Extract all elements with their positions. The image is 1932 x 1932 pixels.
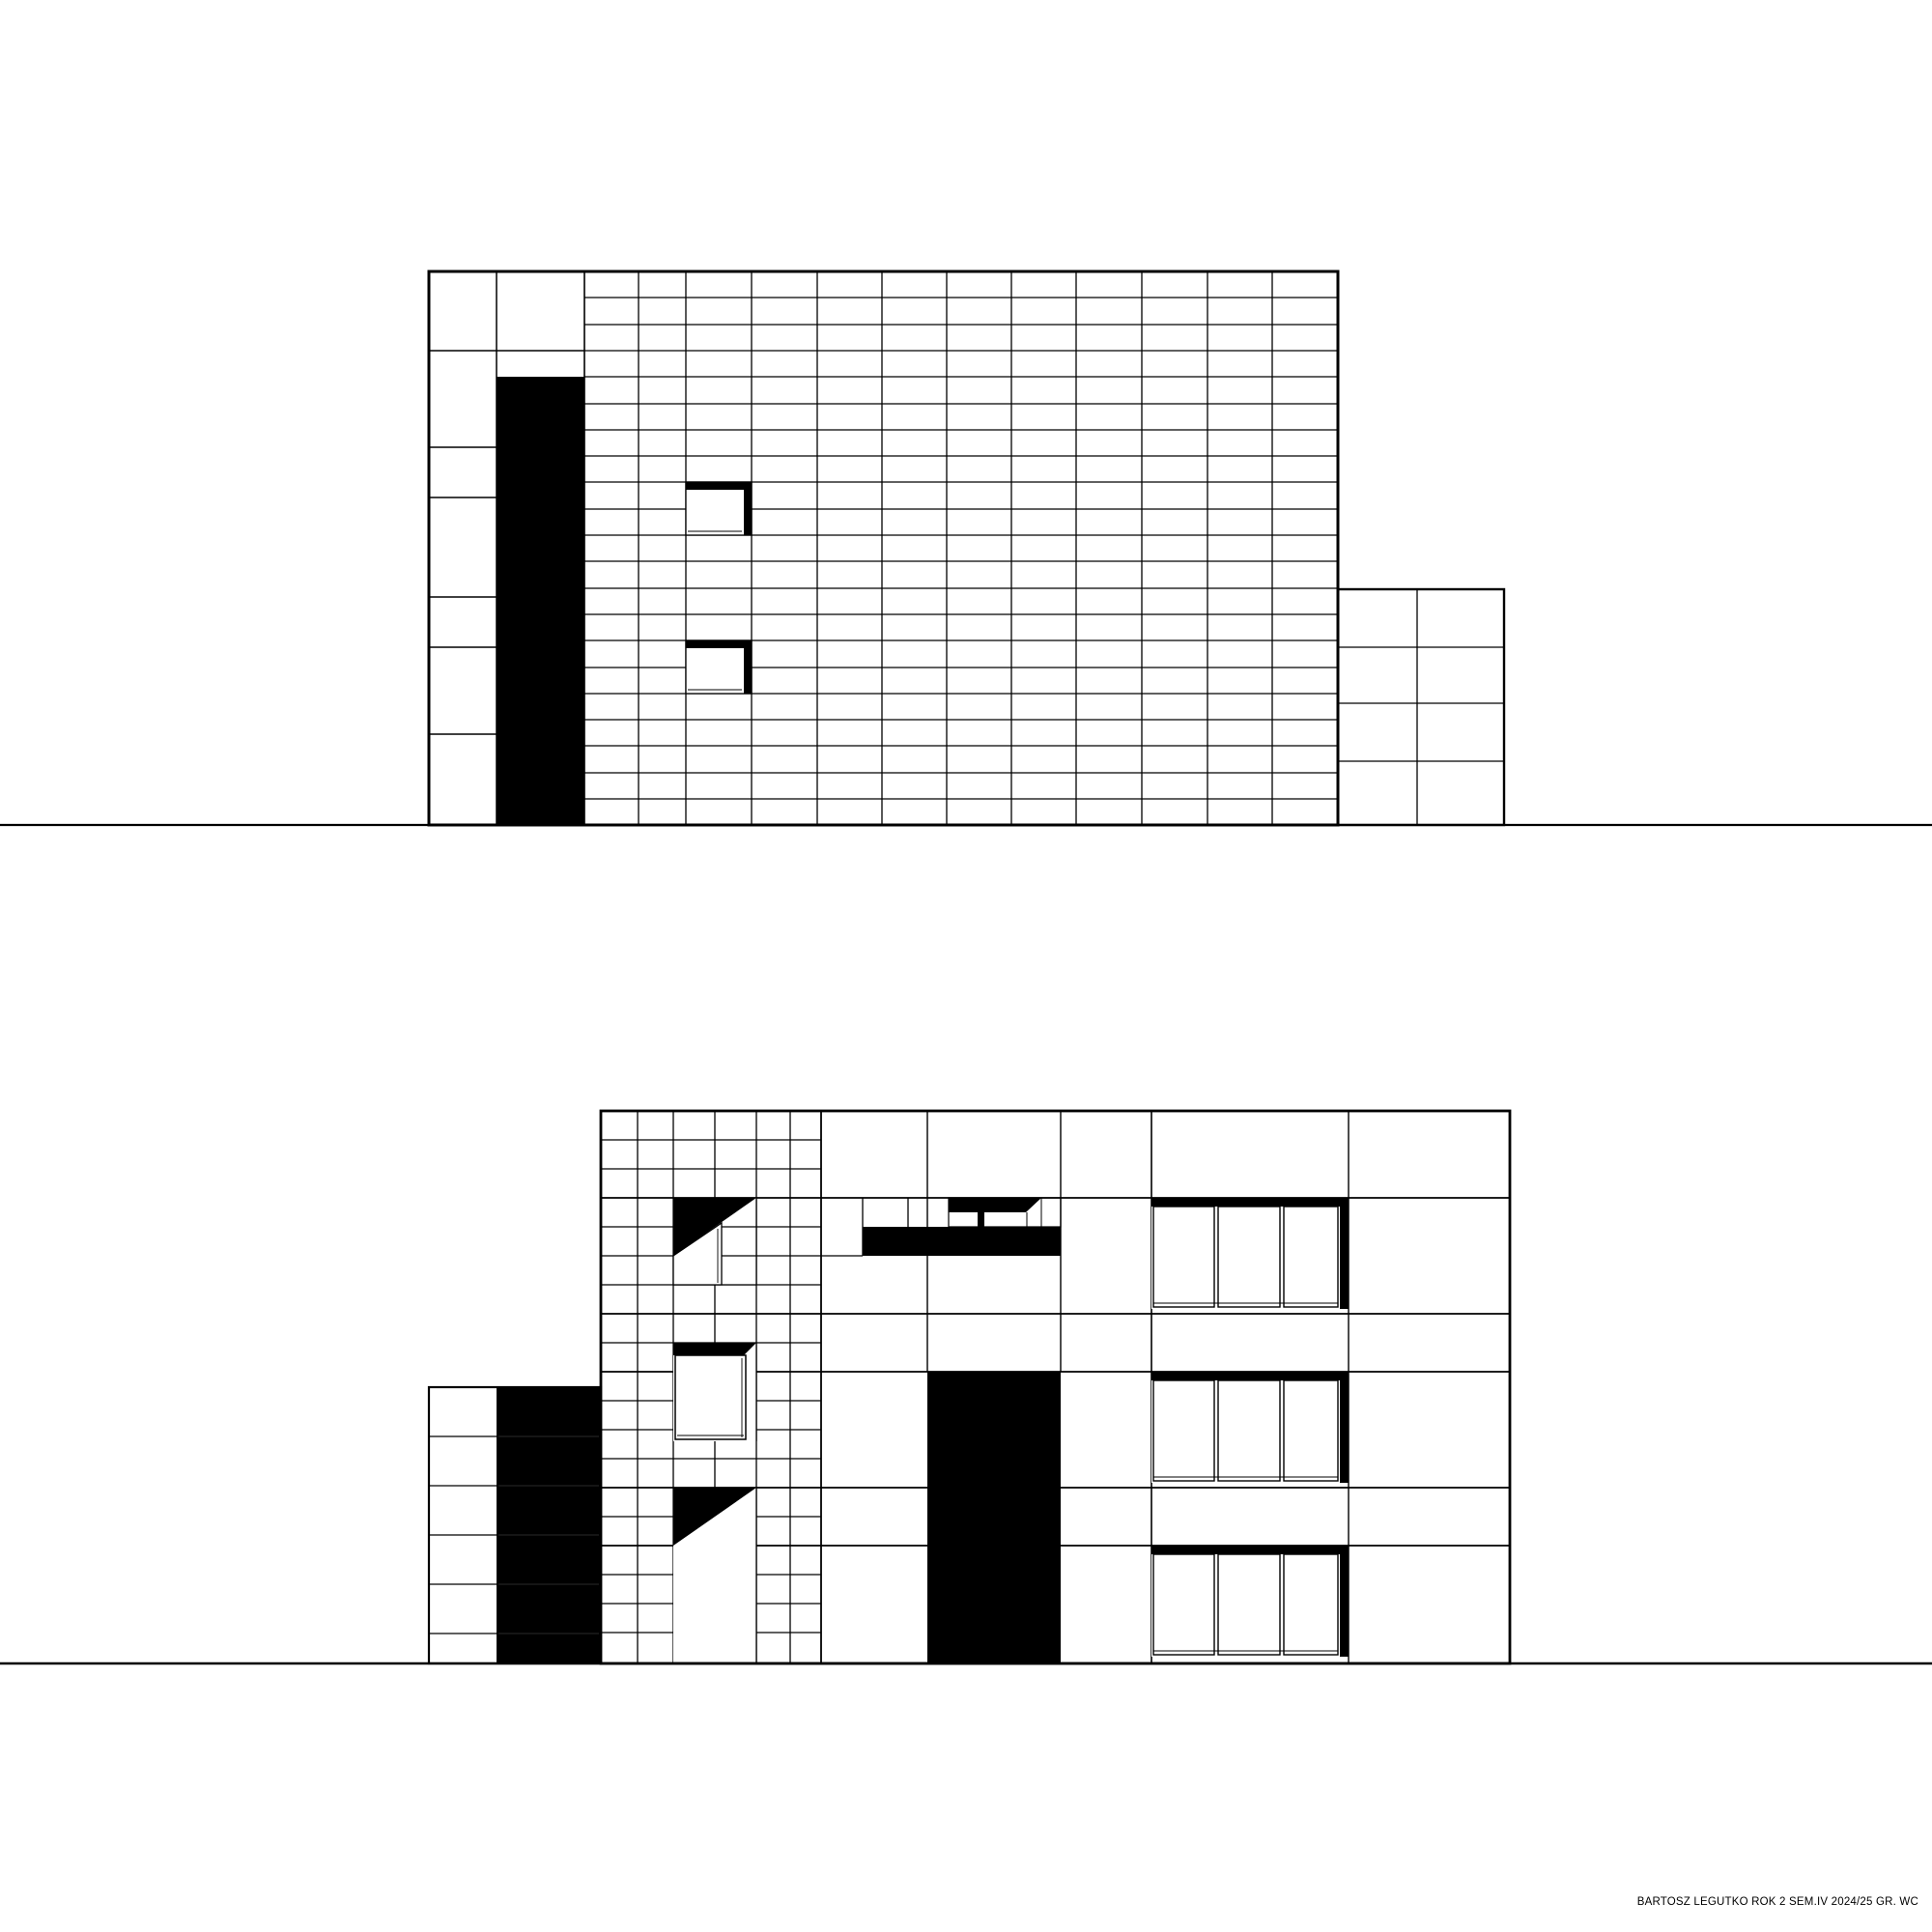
drawing-sheet: BARTOSZ LEGUTKO ROK 2 SEM.IV 2024/25 GR.… — [0, 0, 1932, 1932]
elevation-drawing — [0, 0, 1932, 1932]
upper-elevation-side — [0, 271, 1932, 825]
lower-elevation-front — [0, 1111, 1932, 1663]
title-annotation: BARTOSZ LEGUTKO ROK 2 SEM.IV 2024/25 GR.… — [1637, 1896, 1918, 1908]
